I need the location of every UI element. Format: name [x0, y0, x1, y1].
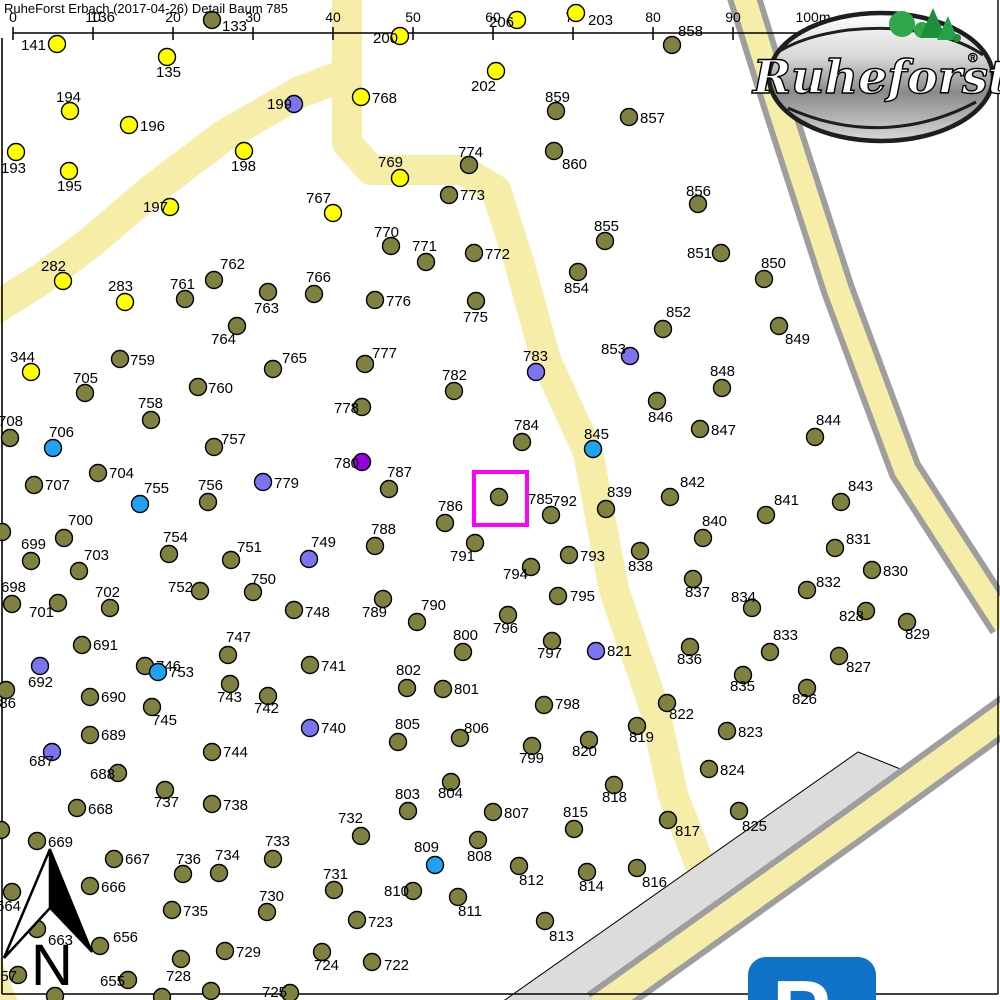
tree-label-780: 780	[334, 455, 359, 472]
tree-label-195: 195	[57, 178, 82, 195]
tree-label-738: 738	[223, 797, 248, 814]
tree-marker-840[interactable]	[695, 530, 712, 547]
tree-marker-817[interactable]	[660, 812, 677, 829]
tree-label-814: 814	[579, 878, 604, 895]
tree-label-745: 745	[152, 712, 177, 729]
tree-label-687: 687	[29, 753, 54, 770]
north-label: N	[31, 933, 73, 998]
tree-label-840: 840	[702, 513, 727, 530]
tree-marker-779[interactable]	[255, 474, 272, 491]
tree-label-834: 834	[731, 589, 756, 606]
tree-marker-703[interactable]	[71, 563, 88, 580]
tree-marker-723[interactable]	[349, 912, 366, 929]
tree-label-757: 757	[221, 431, 246, 448]
tree-label-806: 806	[464, 720, 489, 737]
tree-marker-722[interactable]	[364, 954, 381, 971]
tree-label-283: 283	[108, 278, 133, 295]
tree-label-133: 133	[222, 18, 247, 35]
tree-marker-775[interactable]	[468, 293, 485, 310]
tree-label-823: 823	[738, 724, 763, 741]
tree-label-798: 798	[555, 696, 580, 713]
tree-marker-793[interactable]	[561, 547, 578, 564]
tree-label-737: 737	[154, 794, 179, 811]
scale-tick-label-80: 80	[645, 9, 661, 25]
tree-label-832: 832	[816, 574, 841, 591]
tree-marker-802[interactable]	[399, 680, 416, 697]
tree-label-736: 736	[176, 851, 201, 868]
parking-icon: P	[748, 957, 876, 1000]
tree-label-764: 764	[211, 331, 236, 348]
tree-marker-736[interactable]	[175, 866, 192, 883]
tree-marker-761[interactable]	[177, 291, 194, 308]
tree-label-851: 851	[687, 245, 712, 262]
tree-label-740: 740	[321, 720, 346, 737]
tree-label-820: 820	[572, 743, 597, 760]
tree-label-723: 723	[368, 914, 393, 931]
tree-marker-748[interactable]	[286, 602, 303, 619]
tree-marker-844[interactable]	[807, 429, 824, 446]
tree-label-750: 750	[251, 571, 276, 588]
logo-tree-icon	[953, 34, 961, 42]
tree-label-852: 852	[666, 304, 691, 321]
logo-wordmark: Ruheforst	[751, 50, 1000, 104]
tree-label-760: 760	[208, 380, 233, 397]
tree-marker-821[interactable]	[588, 643, 605, 660]
tree-marker-unlabeled[interactable]	[0, 524, 11, 541]
tree-marker-838[interactable]	[632, 543, 649, 560]
tree-label-773: 773	[460, 187, 485, 204]
tree-label-732: 732	[338, 810, 363, 827]
tree-marker-730[interactable]	[259, 904, 276, 921]
tree-label-664: 664	[0, 898, 21, 915]
tree-label-725: 725	[262, 984, 287, 1000]
tree-label-768: 768	[372, 90, 397, 107]
logo-registered-mark: ®	[968, 50, 978, 65]
tree-label-747: 747	[226, 629, 251, 646]
tree-label-707: 707	[45, 477, 70, 494]
tree-marker-776[interactable]	[367, 292, 384, 309]
tree-marker-771[interactable]	[418, 254, 435, 271]
logo-tree-icon	[889, 11, 915, 37]
tree-marker-815[interactable]	[566, 821, 583, 838]
tree-marker-846[interactable]	[649, 393, 666, 410]
tree-marker-850[interactable]	[756, 271, 773, 288]
tree-label-688: 688	[90, 766, 115, 783]
tree-marker-752[interactable]	[192, 583, 209, 600]
tree-label-846: 846	[648, 409, 673, 426]
tree-label-730: 730	[259, 888, 284, 905]
tree-label-799: 799	[519, 750, 544, 767]
tree-label-829: 829	[905, 626, 930, 643]
tree-marker-832[interactable]	[799, 582, 816, 599]
tree-marker-808[interactable]	[470, 832, 487, 849]
tree-marker-193[interactable]	[8, 144, 25, 161]
tree-marker-704[interactable]	[90, 465, 107, 482]
tree-label-842: 842	[680, 474, 705, 491]
tree-label-782: 782	[442, 367, 467, 384]
tree-label-199: 199	[267, 96, 292, 113]
tree-label-848: 848	[710, 363, 735, 380]
tree-label-769: 769	[378, 154, 403, 171]
tree-marker-732[interactable]	[353, 828, 370, 845]
scale-tick-label-50: 50	[405, 9, 421, 25]
tree-marker-198[interactable]	[236, 143, 253, 160]
map-canvas: RuheForst Erbach (2017-04-26) Detail Bau…	[0, 0, 1000, 1000]
tree-marker-800[interactable]	[455, 644, 472, 661]
tree-label-766: 766	[306, 269, 331, 286]
tree-label-860: 860	[562, 156, 587, 173]
tree-label-807: 807	[504, 805, 529, 822]
tree-marker-705[interactable]	[77, 385, 94, 402]
tree-label-793: 793	[580, 548, 605, 565]
tree-marker-196[interactable]	[121, 117, 138, 134]
tree-marker-762[interactable]	[206, 272, 223, 289]
tree-marker-777[interactable]	[357, 356, 374, 373]
tree-label-734: 734	[215, 847, 240, 864]
tree-label-830: 830	[883, 563, 908, 580]
tree-label-749: 749	[311, 534, 336, 551]
tree-marker-790[interactable]	[409, 614, 426, 631]
tree-label-742: 742	[254, 700, 279, 717]
tree-marker-692[interactable]	[32, 658, 49, 675]
tree-label-801: 801	[454, 681, 479, 698]
tree-marker-733[interactable]	[265, 851, 282, 868]
tree-label-802: 802	[396, 662, 421, 679]
tree-label-735: 735	[183, 903, 208, 920]
tree-label-196: 196	[140, 118, 165, 135]
tree-label-774: 774	[458, 144, 483, 161]
tree-label-744: 744	[223, 744, 248, 761]
tree-marker-851[interactable]	[713, 245, 730, 262]
tree-label-775: 775	[463, 309, 488, 326]
tree-label-815: 815	[563, 804, 588, 821]
tree-label-813: 813	[549, 928, 574, 945]
tree-marker-798[interactable]	[536, 697, 553, 714]
tree-label-656: 656	[113, 929, 138, 946]
tree-marker-749[interactable]	[301, 551, 318, 568]
tree-label-753: 753	[169, 664, 194, 681]
tree-label-805: 805	[395, 716, 420, 733]
tree-marker-698[interactable]	[4, 596, 21, 613]
tree-marker-135[interactable]	[159, 49, 176, 66]
tree-label-836: 836	[677, 651, 702, 668]
tree-label-841: 841	[774, 492, 799, 509]
scale-tick-label-90: 90	[725, 9, 741, 25]
tree-marker-845[interactable]	[585, 441, 602, 458]
tree-marker-734[interactable]	[211, 865, 228, 882]
tree-label-812: 812	[519, 872, 544, 889]
tree-marker-857[interactable]	[621, 109, 638, 126]
tree-marker-754[interactable]	[161, 546, 178, 563]
tree-marker-141[interactable]	[49, 36, 66, 53]
tree-label-763: 763	[254, 300, 279, 317]
tree-label-748: 748	[305, 604, 330, 621]
tree-marker-854[interactable]	[570, 264, 587, 281]
tree-label-817: 817	[675, 823, 700, 840]
tree-marker-668[interactable]	[69, 800, 86, 817]
tree-marker-842[interactable]	[662, 489, 679, 506]
tree-marker-699[interactable]	[23, 553, 40, 570]
tree-label-816: 816	[642, 874, 667, 891]
tree-marker-784[interactable]	[514, 434, 531, 451]
tree-marker-769[interactable]	[392, 170, 409, 187]
tree-label-765: 765	[282, 350, 307, 367]
tree-label-838: 838	[628, 558, 653, 575]
tree-label-789: 789	[362, 604, 387, 621]
tree-marker-656[interactable]	[92, 938, 109, 955]
tree-label-667: 667	[125, 851, 150, 868]
tree-label-859: 859	[545, 89, 570, 106]
tree-marker-753[interactable]	[150, 664, 167, 681]
tree-label-779: 779	[274, 475, 299, 492]
tree-marker-unlabeled[interactable]	[203, 983, 220, 1000]
tree-marker-852[interactable]	[655, 321, 672, 338]
tree-marker-728[interactable]	[173, 951, 190, 968]
tree-marker-702[interactable]	[102, 600, 119, 617]
tree-marker-833[interactable]	[762, 644, 779, 661]
tree-marker-731[interactable]	[326, 882, 343, 899]
tree-label-821: 821	[607, 643, 632, 660]
tree-marker-757[interactable]	[206, 439, 223, 456]
tree-marker-669[interactable]	[29, 833, 46, 850]
tree-marker-805[interactable]	[390, 734, 407, 751]
tree-label-728: 728	[166, 968, 191, 985]
tree-label-825: 825	[742, 818, 767, 835]
tree-label-797: 797	[537, 645, 562, 662]
tree-label-702: 702	[95, 584, 120, 601]
tree-marker-202[interactable]	[488, 63, 505, 80]
tree-marker-690[interactable]	[82, 689, 99, 706]
tree-label-855: 855	[594, 218, 619, 235]
tree-label-776: 776	[386, 293, 411, 310]
tree-label-853: 853	[601, 341, 626, 358]
tree-label-657: 657	[0, 968, 17, 985]
tree-marker-689[interactable]	[82, 727, 99, 744]
tree-label-839: 839	[607, 484, 632, 501]
tree-marker-755[interactable]	[132, 496, 149, 513]
tree-label-690: 690	[101, 689, 126, 706]
tree-marker-827[interactable]	[831, 648, 848, 665]
tree-marker-773[interactable]	[441, 187, 458, 204]
tree-label-203: 203	[588, 12, 613, 29]
tree-marker-282[interactable]	[55, 273, 72, 290]
tree-label-858: 858	[678, 23, 703, 40]
tree-label-722: 722	[384, 957, 409, 974]
tree-marker-765[interactable]	[265, 361, 282, 378]
tree-label-703: 703	[84, 547, 109, 564]
tree-label-857: 857	[640, 110, 665, 127]
tree-marker-843[interactable]	[833, 494, 850, 511]
tree-marker-740[interactable]	[302, 720, 319, 737]
tree-marker-847[interactable]	[692, 421, 709, 438]
tree-marker-860[interactable]	[546, 143, 563, 160]
tree-label-828: 828	[839, 608, 864, 625]
tree-label-202: 202	[471, 78, 496, 95]
tree-marker-759[interactable]	[112, 351, 129, 368]
tree-marker-729[interactable]	[217, 943, 234, 960]
tree-marker-691[interactable]	[74, 637, 91, 654]
tree-marker-738[interactable]	[204, 796, 221, 813]
tree-marker-783[interactable]	[528, 364, 545, 381]
tree-label-796: 796	[493, 620, 518, 637]
tree-label-692: 692	[28, 674, 53, 691]
tree-label-833: 833	[773, 627, 798, 644]
map-title: RuheForst Erbach (2017-04-26) Detail Bau…	[4, 1, 288, 16]
tree-marker-735[interactable]	[164, 902, 181, 919]
tree-label-344: 344	[10, 349, 35, 366]
tree-label-845: 845	[584, 426, 609, 443]
tree-label-655: 655	[100, 973, 125, 990]
tree-label-135: 135	[156, 64, 181, 81]
tree-label-849: 849	[785, 331, 810, 348]
tree-label-705: 705	[73, 370, 98, 387]
tree-marker-825[interactable]	[731, 803, 748, 820]
tree-label-724: 724	[314, 957, 339, 974]
tree-label-141: 141	[21, 37, 46, 54]
tree-marker-785[interactable]	[491, 489, 508, 506]
tree-marker-666[interactable]	[82, 878, 99, 895]
tree-label-704: 704	[109, 465, 134, 482]
tree-label-741: 741	[321, 658, 346, 675]
tree-marker-763[interactable]	[260, 284, 277, 301]
tree-marker-841[interactable]	[758, 507, 775, 524]
tree-label-804: 804	[438, 785, 463, 802]
tree-marker-706[interactable]	[45, 440, 62, 457]
tree-label-751: 751	[237, 539, 262, 556]
tree-marker-787[interactable]	[381, 481, 398, 498]
tree-marker-756[interactable]	[200, 494, 217, 511]
tree-label-700: 700	[68, 512, 93, 529]
tree-label-729: 729	[236, 944, 261, 961]
tree-label-788: 788	[371, 521, 396, 538]
tree-label-843: 843	[848, 478, 873, 495]
tree-label-194: 194	[56, 89, 81, 106]
tree-marker-788[interactable]	[367, 538, 384, 555]
tree-label-800: 800	[453, 627, 478, 644]
tree-marker-344[interactable]	[23, 364, 40, 381]
tree-label-770: 770	[374, 224, 399, 241]
tree-label-803: 803	[395, 786, 420, 803]
tree-label-200: 200	[373, 30, 398, 47]
tree-marker-unlabeled[interactable]	[0, 822, 10, 839]
tree-marker-760[interactable]	[190, 379, 207, 396]
tree-label-689: 689	[101, 727, 126, 744]
tree-label-197: 197	[143, 199, 168, 216]
tree-marker-744[interactable]	[204, 744, 221, 761]
tree-label-831: 831	[846, 531, 871, 548]
tree-marker-807[interactable]	[485, 804, 502, 821]
tree-label-854: 854	[564, 280, 589, 297]
tree-marker-768[interactable]	[353, 89, 370, 106]
tree-label-822: 822	[669, 706, 694, 723]
tree-marker-283[interactable]	[117, 294, 134, 311]
tree-label-686: 686	[0, 695, 16, 712]
tree-marker-758[interactable]	[143, 412, 160, 429]
tree-marker-839[interactable]	[598, 501, 615, 518]
tree-label-777: 777	[372, 345, 397, 362]
tree-label-206: 206	[489, 14, 514, 31]
tree-label-837: 837	[685, 584, 710, 601]
tree-label-698: 698	[1, 579, 26, 596]
tree-marker-795[interactable]	[550, 588, 567, 605]
tree-label-699: 699	[21, 536, 46, 553]
tree-marker-848[interactable]	[714, 380, 731, 397]
tree-label-856: 856	[686, 183, 711, 200]
tree-marker-813[interactable]	[537, 913, 554, 930]
tree-marker-203[interactable]	[568, 5, 585, 22]
parking-icon-letter: P	[772, 962, 831, 1000]
tree-label-756: 756	[198, 477, 223, 494]
tree-label-811: 811	[458, 903, 482, 920]
tree-marker-855[interactable]	[597, 233, 614, 250]
tree-marker-747[interactable]	[220, 647, 237, 664]
tree-label-767: 767	[306, 190, 331, 207]
tree-marker-708[interactable]	[2, 430, 19, 447]
tree-label-758: 758	[138, 395, 163, 412]
tree-label-835: 835	[730, 678, 755, 695]
tree-label-783: 783	[523, 348, 548, 365]
tree-label-752: 752	[168, 579, 193, 596]
tree-label-706: 706	[49, 424, 74, 441]
tree-marker-unlabeled[interactable]	[154, 989, 171, 1000]
tree-marker-767[interactable]	[325, 205, 342, 222]
tree-marker-831[interactable]	[827, 540, 844, 557]
tree-label-282: 282	[41, 258, 66, 275]
tree-label-784: 784	[514, 417, 539, 434]
tree-marker-741[interactable]	[302, 657, 319, 674]
tree-marker-786[interactable]	[437, 515, 454, 532]
tree-marker-667[interactable]	[106, 851, 123, 868]
tree-label-792: 792	[552, 493, 577, 510]
tree-label-759: 759	[130, 352, 155, 369]
tree-label-786: 786	[438, 498, 463, 515]
scale-tick-label-40: 40	[325, 9, 341, 25]
tree-marker-830[interactable]	[864, 562, 881, 579]
tree-label-819: 819	[629, 729, 654, 746]
tree-label-669: 669	[48, 834, 73, 851]
tree-marker-766[interactable]	[306, 286, 323, 303]
tree-label-827: 827	[846, 659, 871, 676]
tree-label-666: 666	[101, 879, 126, 896]
tree-marker-707[interactable]	[26, 477, 43, 494]
tree-label-810: 810	[384, 883, 409, 900]
tree-label-755: 755	[144, 480, 169, 497]
tree-label-754: 754	[163, 529, 188, 546]
tree-label-771: 771	[412, 238, 437, 255]
tree-label-808: 808	[467, 848, 492, 865]
tree-label-772: 772	[485, 246, 510, 263]
tree-marker-700[interactable]	[56, 530, 73, 547]
tree-label-824: 824	[720, 762, 745, 779]
tree-marker-803[interactable]	[400, 803, 417, 820]
tree-label-791: 791	[450, 548, 475, 565]
tree-marker-772[interactable]	[466, 245, 483, 262]
tree-label-733: 733	[265, 833, 290, 850]
paths-layer	[0, 0, 700, 1000]
tree-label-708: 708	[0, 413, 23, 430]
tree-marker-823[interactable]	[719, 723, 736, 740]
tree-marker-801[interactable]	[435, 681, 452, 698]
tree-label-847: 847	[711, 422, 736, 439]
tree-marker-782[interactable]	[446, 383, 463, 400]
tree-marker-195[interactable]	[61, 163, 78, 180]
tree-label-795: 795	[570, 588, 595, 605]
tree-label-701: 701	[29, 604, 54, 621]
tree-marker-824[interactable]	[701, 761, 718, 778]
tree-marker-809[interactable]	[427, 857, 444, 874]
tree-label-818: 818	[602, 789, 627, 806]
tree-label-787: 787	[387, 464, 412, 481]
